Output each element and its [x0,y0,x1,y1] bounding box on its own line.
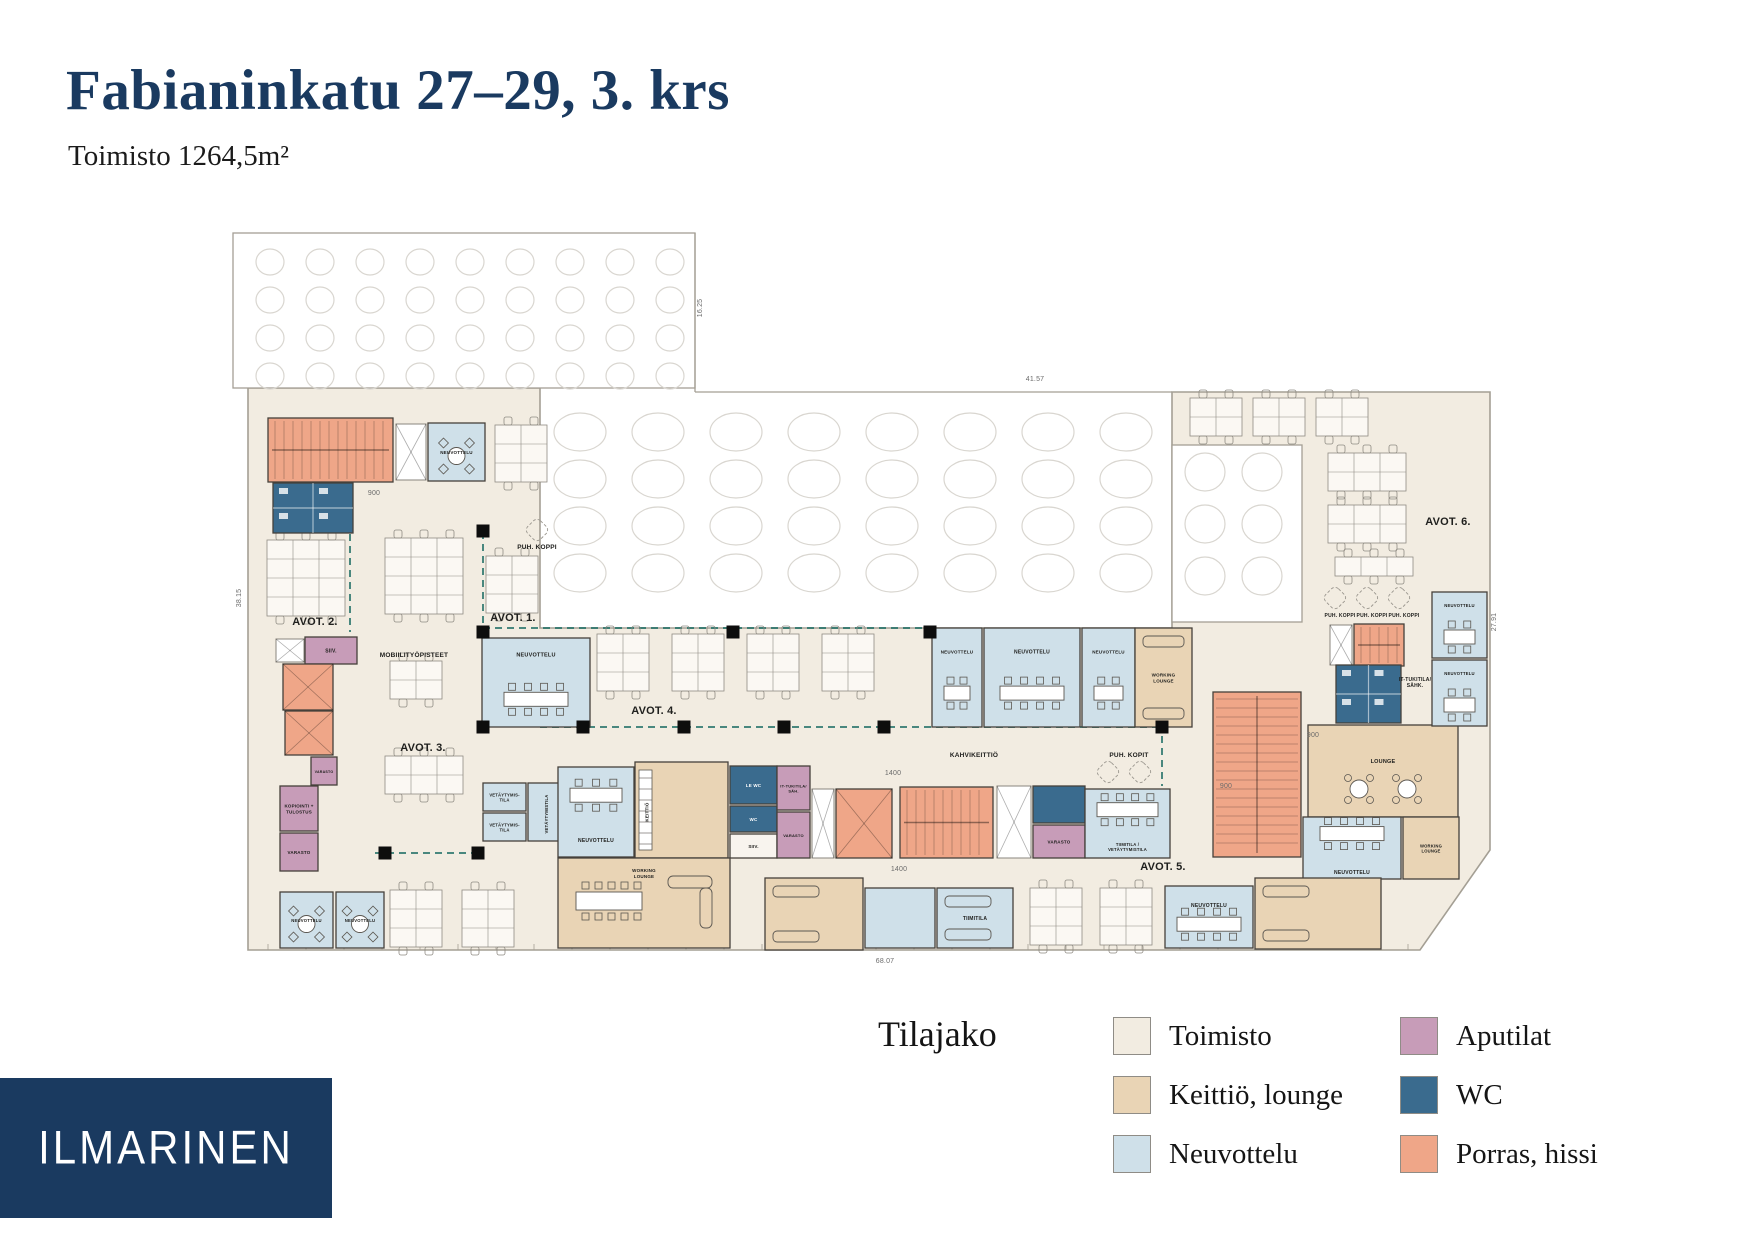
grid-circle [788,554,840,592]
grid-circle [710,507,762,545]
plan-text: SIIV. [325,649,337,655]
grid-circle [554,460,606,498]
legend-item-aputilat: Aputilat [1400,1017,1551,1055]
plan-room [396,424,426,480]
plan-text: 16.25 [697,299,704,318]
plan-text: NEUVOTTELU [941,650,974,655]
desk-cluster [390,882,442,955]
plan-room [1033,786,1085,823]
plan-room [276,639,304,662]
plan-room-neuvottelu: NEUVOTTELU [1432,592,1487,658]
structural-column [477,525,490,538]
desk-cluster [462,882,514,955]
legend-label: WC [1456,1079,1503,1112]
desk-cluster [1253,390,1305,444]
structural-column [727,626,740,639]
plan-text: 900 [1220,783,1232,790]
desk-cluster [1100,880,1152,953]
plan-text: PUH. KOPIT [1109,752,1148,759]
grid-circle [1100,413,1152,451]
legend-item-porras-hissi: Porras, hissi [1400,1135,1598,1173]
plan-room [765,878,863,950]
plan-text: WORKINGLOUNGE [1152,673,1176,684]
plan-room [285,711,333,755]
desk-cluster [390,653,442,707]
plan-room-working-lounge: WORKINGLOUNGE [558,858,730,948]
plan-room-working-lounge: WORKINGLOUNGE [1135,628,1192,727]
structural-column [778,721,791,734]
plan-text: KEITTIÖ [644,802,650,821]
desk-cluster [486,548,538,621]
plan-text: 1400 [891,866,907,873]
plan-room [1213,692,1301,857]
grid-circle [788,413,840,451]
structural-column [924,626,937,639]
desk-cluster [597,626,649,699]
plan-room-siiv-: SIIV. [305,637,357,664]
plan-text: NEUVOTTELU [516,653,555,659]
structural-column [477,721,490,734]
grid-circle [866,413,918,451]
legend-label: Aputilat [1456,1020,1551,1053]
grid-circle [1022,554,1074,592]
structural-column [472,847,485,860]
plan-room-varasto: VARASTO [311,757,337,785]
plan-room-neuvottelu: NEUVOTTELU [1165,886,1253,948]
grid-circle [632,460,684,498]
plan-room-working-lounge: WORKINGLOUNGE [1403,817,1459,879]
plan-text: NEUVOTTELU [1014,650,1050,656]
plan-room-tiimitila-vetäytymistila: TIIMITILA /VETÄYTYMISTILA [1085,789,1170,858]
structural-column [577,721,590,734]
desk-cluster [822,626,874,699]
plan-text: AVOT. 3. [400,742,445,754]
legend-swatch [1113,1135,1151,1173]
plan-text: MOBIILITYÖPISTEET [380,650,448,659]
plan-text: KOPIOINTI +TULOSTUS [284,804,313,815]
grid-circle [632,413,684,451]
desk-cluster [385,530,463,622]
grid-circle [944,413,996,451]
plan-text: WC [750,817,758,822]
desk-cluster [672,626,724,699]
legend-item-neuvottelu: Neuvottelu [1113,1135,1298,1173]
plan-text: VARASTO [288,850,311,855]
plan-text: WORKINGLOUNGE [632,868,656,879]
plan-room [900,787,993,858]
grid-circle [944,507,996,545]
desk-cluster [1328,497,1406,551]
plan-room-kopiointi-tulostus: KOPIOINTI +TULOSTUS [280,786,318,831]
plan-room [283,664,333,710]
grid-circle [866,554,918,592]
plan-room-neuvottelu: NEUVOTTELU [984,628,1080,727]
plan-text: VARASTO [783,833,804,838]
plan-room-neuvottelu: NEUVOTTELU [1303,817,1401,879]
plan-room-le-wc: LE WC [730,766,777,804]
plan-room-tiimitila: TIIMITILA [937,888,1013,948]
desk-cluster [267,532,345,624]
plan-room-it-tukitila-säh-: IT-TUKITILA/SÄH. [777,766,810,810]
legend-label: Keittiö, lounge [1169,1079,1343,1112]
legend-swatch [1400,1135,1438,1173]
plan-room-keittiö: KEITTIÖ [635,762,728,858]
structural-column [878,721,891,734]
plan-room-neuvottelu: NEUVOTTELU [558,767,634,857]
desk-cluster [1316,390,1368,444]
plan-text: NEUVOTTELU [345,918,375,923]
grid-circle [866,507,918,545]
legend-swatch [1400,1076,1438,1114]
structural-column [1156,721,1169,734]
grid-circle [632,507,684,545]
grid-circle [554,507,606,545]
legend-title: Tilajako [878,1013,997,1055]
plan-text: 68.07 [876,958,895,965]
grid-circle [710,413,762,451]
plan-text: WORKINGLOUNGE [1420,843,1442,853]
plan-text: NEUVOTTELU [1444,671,1474,676]
plan-text: 900 [368,490,380,497]
desk-cluster [385,748,463,802]
grid-circle [866,460,918,498]
legend-label: Porras, hissi [1456,1138,1598,1171]
grid-circle [710,554,762,592]
plan-text: AVOT. 2. [292,616,337,628]
plan-text: TIIMITILA [963,916,987,922]
plan-text: PUH. KOPPI [1325,613,1356,619]
grid-circle [944,460,996,498]
grid-circle [632,554,684,592]
plan-text: NEUVOTTELU [1334,870,1370,876]
legend-item-wc: WC [1400,1076,1503,1114]
structural-column [477,626,490,639]
plan-room [1354,624,1404,666]
plan-text: AVOT. 6. [1425,516,1470,528]
plan-text: NEUVOTTELU [1191,903,1227,909]
plan-room [997,786,1031,858]
plan-room [836,789,892,858]
plan-room [1255,878,1381,949]
plan-room [1330,625,1352,665]
grid-circle [1100,460,1152,498]
structural-column [379,847,392,860]
grid-circle [1100,554,1152,592]
grid-circle [944,554,996,592]
legend-swatch [1400,1017,1438,1055]
plan-text: 38.15 [236,589,243,608]
plan-room-neuvottelu: NEUVOTTELU [428,423,485,481]
plan-room-neuvottelu: NEUVOTTELU [280,892,333,948]
plan-room-lounge: LOUNGE [1308,725,1458,817]
plan-room [1336,665,1401,723]
plan-room-wc: WC [730,806,777,832]
grid-circle [788,507,840,545]
structural-column [678,721,691,734]
grid-circle [1022,507,1074,545]
plan-text: 900 [1307,732,1319,739]
plan-text: LE WC [746,783,762,788]
plan-text: PUH. KOPPI [517,544,557,551]
plan-room-varasto: VARASTO [777,812,810,858]
plan-text: 41.57 [1026,376,1045,383]
plan-room-neuvottelu: NEUVOTTELU [1082,628,1135,727]
ilmarinen-logo-text: ILMARINEN [38,1121,294,1175]
plan-room-vetäytymis-tila: VETÄYTYMIS-TILA [483,813,526,841]
grid-circle [1100,507,1152,545]
plan-room-neuvottelu: NEUVOTTELU [932,628,982,727]
grid-circle [788,460,840,498]
grid-circle [1022,413,1074,451]
plan-text: NEUVOTTELU [1092,650,1125,655]
plan-text: PUH. KOPPI [1389,613,1420,619]
plan-room-neuvottelu: NEUVOTTELU [336,892,384,948]
plan-text: AVOT. 4. [631,705,676,717]
plan-text: NEUVOTTELU [440,450,473,455]
ilmarinen-logo: ILMARINEN [0,1078,332,1218]
plan-text: NEUVOTTELU [291,918,321,923]
grid-circle [710,460,762,498]
legend-item-keitti-lounge: Keittiö, lounge [1113,1076,1343,1114]
desk-cluster [1030,880,1082,953]
plan-room-siiv-: SIIV. [730,834,777,858]
plan-text: VARASTO [1048,840,1071,845]
plan-room-varasto: VARASTO [1033,825,1085,858]
plan-room [268,418,393,482]
grid-circle [554,554,606,592]
plan-text: VARASTO [315,770,334,774]
plan-room [273,483,353,533]
plan-room-neuvottelu: NEUVOTTELU [482,638,590,727]
desk-cluster [495,417,547,490]
grid-circle [1022,460,1074,498]
plan-room [812,789,834,858]
plan-text: NEUVOTTELU [1444,603,1474,608]
legend-item-toimisto: Toimisto [1113,1017,1272,1055]
plan-text: PUH. KOPPI [1357,613,1388,619]
plan-text: VETÄYTYMISTILA [544,795,549,834]
plan-room-varasto: VARASTO [280,833,318,871]
plan-room-vetäytymis-tila: VETÄYTYMIS-TILA [483,783,526,811]
plan-text: LOUNGE [1371,759,1396,765]
plan-room-neuvottelu: NEUVOTTELU [1432,660,1487,726]
legend-label: Toimisto [1169,1020,1272,1053]
desk-cluster [1190,390,1242,444]
plan-text: AVOT. 5. [1140,861,1185,873]
legend-swatch [1113,1076,1151,1114]
legend-swatch [1113,1017,1151,1055]
plan-text: KAHVIKEITTIÖ [950,750,998,759]
grid-circle [554,413,606,451]
plan-text: NEUVOTTELU [578,838,614,844]
desk-cluster [1328,445,1406,499]
legend-label: Neuvottelu [1169,1138,1298,1171]
desk-cluster [747,626,799,699]
plan-text: SIIV. [748,844,758,849]
plan-room [865,888,935,948]
plan-text: 1400 [885,770,901,777]
plan-text: AVOT. 1. [490,612,535,624]
plan-text: 27.91 [1491,613,1498,632]
